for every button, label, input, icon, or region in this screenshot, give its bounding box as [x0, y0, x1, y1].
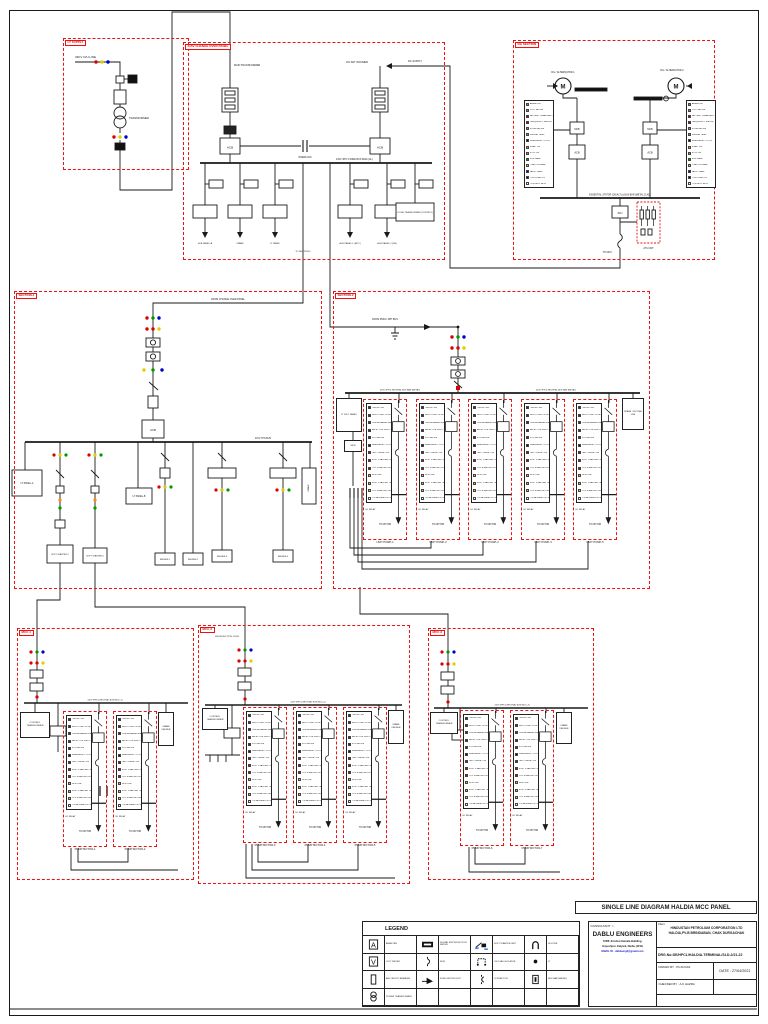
- starter-module-frame: ON/OFF SWMULTI FUNCTION METERDIGITAL AMM…: [521, 399, 565, 540]
- indicator-label: ON/OFF SW: [530, 407, 542, 409]
- indicator-row: EMERGENCY STOP: [117, 752, 141, 759]
- to-motor-label: TO MOTOR: [417, 524, 459, 526]
- indicator-lamp-icon: [526, 444, 529, 447]
- indicator-label: MULTI FUNCTION METER: [469, 725, 488, 727]
- indicator-row: MULTI FUNCTION METER: [514, 722, 538, 729]
- indicator-label: SELECTOR SWITCH: [469, 739, 488, 741]
- indicator-label: ON/OFF SW: [302, 714, 314, 716]
- indicator-row: DOL STARTER OFF: [297, 791, 321, 798]
- indicator-lamp-icon: [348, 757, 351, 760]
- indicator-lamp-icon: [473, 436, 476, 439]
- indicator-row: SELECTOR SWITCH: [525, 427, 549, 435]
- indicator-label: DOL STARTER ON: [122, 776, 141, 778]
- indicator-label: SOFT STARTER TRIP: [519, 789, 538, 791]
- indicator-row: MULTI FUNCTION METER: [577, 412, 601, 420]
- starter-module-pump-motor-2: ON/OFF SWMULTI FUNCTION METERDIGITAL AMM…: [113, 711, 157, 856]
- indicator-label: DOL STARTER ON: [477, 467, 496, 469]
- indicator-label: EMERGENCY STOP: [72, 754, 91, 756]
- panel-tag: DG SECTION: [515, 42, 539, 48]
- indicator-lamp-icon: [421, 406, 424, 409]
- indicator-row: TRIP / RESET PB: [347, 755, 371, 762]
- indicator-row: SOFT STARTER ON: [577, 457, 601, 465]
- indicator-row: TRIP / RESET PB: [247, 755, 271, 762]
- starter-module-unit-pump-4: ON/OFF SWMULTI FUNCTION METERDIGITAL AMM…: [521, 399, 565, 549]
- ammeter-icon: A: [363, 936, 385, 954]
- indicator-lamp-icon: [465, 739, 468, 742]
- indicator-row: SOFT STARTER ON: [247, 762, 271, 769]
- indicator-row: MULTI FUNCTION METER: [247, 719, 271, 726]
- panel-tag: MCC-3: [430, 630, 445, 636]
- indicator-label: FAULT LAMP: [692, 171, 705, 173]
- indicator-lamp-icon: [368, 429, 371, 432]
- indicator-lamp-icon: [298, 800, 301, 803]
- indicator-lamp-icon: [68, 732, 71, 735]
- indicator-lamp-icon: [368, 489, 371, 492]
- indicator-label: MCB TRIP: [469, 782, 479, 784]
- indicator-lamp-icon: [348, 736, 351, 739]
- to-motor-label: TO MOTOR: [244, 827, 286, 829]
- indicator-row: SOFT STARTER TRIP: [514, 787, 538, 794]
- indicator-lamp-icon: [473, 406, 476, 409]
- indicator-row: SELECTOR SWITCH: [514, 736, 538, 743]
- indicator-row: MULTI FUNCTION METER: [297, 719, 321, 726]
- indicator-label: MULTI FUNCTION METER: [352, 722, 371, 724]
- indicator-label: AMMETER: [530, 103, 541, 105]
- indicator-lamp-icon: [688, 182, 691, 185]
- indicator-label: CONTROL MCB: [692, 183, 708, 185]
- indicator-row: TRIP / RESET PB: [514, 758, 538, 765]
- indicator-lamp-icon: [298, 764, 301, 767]
- indicator-label: SOFT STARTER ON: [469, 768, 488, 770]
- indicator-label: DOL STARTER ON: [72, 776, 91, 778]
- transformer-icon: [363, 989, 385, 1007]
- indicator-lamp-icon: [298, 714, 301, 717]
- control-transformer-box: CONTROL TRANSFORMER: [430, 712, 458, 734]
- indicator-lamp-icon: [118, 768, 121, 771]
- indicator-label: DOL STARTER ON: [252, 772, 271, 774]
- indicator-row: DIGITAL AMMETER: [367, 419, 391, 427]
- starter-module-frame: ON/OFF SWMULTI FUNCTION METERDIGITAL AMM…: [510, 710, 554, 846]
- indicator-row: SOFT STARTER TRIP: [67, 788, 91, 795]
- indicator-lamp-icon: [526, 421, 529, 424]
- starter-module-label: PUMP MOTOR-6: [456, 847, 508, 855]
- indicator-label: TRIP / RESET PB: [469, 760, 487, 762]
- indicator-label: MULTI FUNCTION METER: [530, 414, 549, 416]
- indicator-label: EMERGENCY STOP: [530, 140, 551, 142]
- indicator-row: DOL STARTER ON: [420, 464, 444, 472]
- indicator-row: ON/OFF SW: [247, 712, 271, 719]
- to-motor-label: TO MOTOR: [64, 831, 106, 833]
- indicator-label: DOL STARTER ON: [302, 772, 321, 774]
- starter-module-frame: ON/OFF SWMULTI FUNCTION METERDIGITAL AMM…: [363, 399, 407, 540]
- consultant-address-1: 72/88 ,Krishna Kamala Building,: [591, 940, 655, 943]
- indicator-lamp-icon: [248, 778, 251, 781]
- overload-relay-label: O/L RELAY: [512, 815, 530, 817]
- indicator-row: RTD METER: [117, 745, 141, 752]
- indicator-lamp-icon: [688, 176, 691, 179]
- indicator-label: MCB TRIP: [72, 783, 82, 785]
- indicator-row: SOFT STARTER ON: [525, 457, 549, 465]
- empty-row: [657, 995, 756, 1006]
- indicator-label: HOUR METER: [692, 128, 707, 130]
- indicator-row: SOFT STARTER ON: [514, 765, 538, 772]
- starter-module-pump-motor-5: ON/OFF SWMULTI FUNCTION METERDIGITAL AMM…: [343, 707, 387, 852]
- spare-feeder-box: SPARE FEEDER: [556, 712, 572, 744]
- indicator-row: ON/OFF SW: [420, 404, 444, 412]
- to-motor-label: TO MOTOR: [114, 831, 156, 833]
- indicator-label: ON/OFF SW: [352, 714, 364, 716]
- indicator-lamp-icon: [248, 764, 251, 767]
- indicator-lamp-icon: [248, 728, 251, 731]
- indicator-row: LOCAL/REMOTE SW: [347, 798, 371, 805]
- starter-module-label: UNIT PUMP-1: [359, 541, 411, 549]
- indicator-label: MCB TRIP: [352, 779, 362, 781]
- indicator-label: RTD METER: [477, 437, 490, 439]
- indicator-label: DIGITAL AMMETER: [469, 732, 488, 734]
- indicator-label: DIGITAL AMMETER: [252, 729, 271, 731]
- indicator-label: LOW LUBE OIL: [692, 177, 707, 179]
- legend-label: AIR CIRCUIT BREAKER: [385, 971, 417, 989]
- indicator-label: DIGITAL AMMETER: [530, 422, 549, 424]
- indicator-row: LOCAL/REMOTE SW: [464, 801, 488, 808]
- indicator-row: DOL STARTER ON: [247, 769, 271, 776]
- legend-empty-cell: [493, 989, 525, 1007]
- indicator-row: RTD METER: [420, 434, 444, 442]
- to-motor-label: TO MOTOR: [294, 827, 336, 829]
- indicator-label: ON/OFF SW: [252, 714, 264, 716]
- indicator-label: ON/OFF SW: [519, 717, 531, 719]
- indicator-label: DIGITAL AMMETER: [477, 422, 496, 424]
- indicator-lamp-icon: [348, 778, 351, 781]
- lt-dist-panel-box: LT DIST. PANEL: [336, 398, 362, 432]
- legend-label: LT: [547, 954, 579, 972]
- indicator-label: MCB TRIP: [122, 783, 132, 785]
- indicator-lamp-icon: [688, 115, 691, 118]
- indicator-lamp-icon: [298, 771, 301, 774]
- indicator-label: DIGITAL AMMETER: [352, 729, 371, 731]
- indicator-row: ON/OFF SW: [514, 715, 538, 722]
- indicator-row: SELECTOR SWITCH: [577, 427, 601, 435]
- indicator-label: RUN LAMP: [530, 158, 541, 160]
- indicator-label: ON/OFF SW: [72, 718, 84, 720]
- indicator-row: DOL STARTER ON: [117, 773, 141, 780]
- indicator-lamp-icon: [473, 474, 476, 477]
- indicator-row: DIGITAL AMMETER: [464, 729, 488, 736]
- indicator-row: SELECTOR SWITCH: [67, 737, 91, 744]
- indicator-lamp-icon: [68, 768, 71, 771]
- indicator-lamp-icon: [688, 109, 691, 112]
- indicator-label: LOCAL/REMOTE SW: [477, 497, 496, 499]
- indicator-lamp-icon: [473, 489, 476, 492]
- indicator-lamp-icon: [526, 152, 529, 155]
- indicator-row: MCB TRIP: [247, 776, 271, 783]
- indicator-row: DIGITAL AMMETER: [525, 419, 549, 427]
- indicator-label: EMERGENCY STOP: [352, 750, 371, 752]
- indicator-label: SOFT STARTER ON: [530, 459, 549, 461]
- indicator-label: MCB TRIP: [425, 474, 435, 476]
- indicator-lamp-icon: [465, 753, 468, 756]
- indicator-lamp-icon: [578, 489, 581, 492]
- indicator-label: EMERGENCY STOP: [425, 444, 444, 446]
- indicator-lamp-icon: [473, 482, 476, 485]
- control-transformer-box: CONTROL TRANSFORMER: [202, 708, 228, 730]
- consultant-name: DABLU ENGINEERS: [591, 931, 655, 938]
- indicator-lamp-icon: [368, 459, 371, 462]
- legend-empty-cell: [525, 989, 547, 1007]
- voltmeter-icon: V: [363, 954, 385, 972]
- indicator-row: TRIP / RESET PB: [525, 449, 549, 457]
- client-cell: Client HINDUSTAN PETROLIUM CORPORATION L…: [657, 922, 756, 948]
- indicator-label: RTD METER: [252, 743, 265, 745]
- starter-module-frame: ON/OFF SWMULTI FUNCTION METERDIGITAL AMM…: [416, 399, 460, 540]
- indicator-label: RUN LAMP: [692, 158, 703, 160]
- indicator-row: TRIP / RESET PB: [464, 758, 488, 765]
- indicator-lamp-icon: [348, 764, 351, 767]
- indicator-lamp-icon: [68, 775, 71, 778]
- indicator-lamp-icon: [515, 767, 518, 770]
- indicator-label: LOCAL/REMOTE SW: [372, 497, 391, 499]
- indicator-label: SOFT STARTER ON: [425, 459, 444, 461]
- indicator-lamp-icon: [473, 467, 476, 470]
- indicator-lamp-icon: [68, 740, 71, 743]
- indicator-row: EMERGENCY STOP: [577, 442, 601, 450]
- indicator-lamp-icon: [515, 781, 518, 784]
- indicator-label: SELECTOR SWITCH: [530, 429, 549, 431]
- indicator-label: STOP PB: [692, 152, 701, 154]
- panel-change-over: 415V CHANGE OVER PANEL: [183, 42, 445, 260]
- indicator-lamp-icon: [421, 421, 424, 424]
- indicator-lamp-icon: [473, 421, 476, 424]
- indicator-lamp-icon: [248, 714, 251, 717]
- indicator-row: MULTI FUNCTION METER: [420, 412, 444, 420]
- indicator-row: MULTI FUNCTION METER: [347, 719, 371, 726]
- indicator-row: TRIP / RESET PB: [67, 759, 91, 766]
- panel-tag: 415V CHANGE OVER PANEL: [185, 44, 231, 50]
- indicator-row: TRIP / RESET PB: [577, 449, 601, 457]
- indicator-row: LOCAL/REMOTE SW: [525, 494, 549, 502]
- indicator-label: BATTERY CHARGER ON: [530, 115, 553, 117]
- indicator-row: DIGITAL AMMETER: [420, 419, 444, 427]
- indicator-row: DOL STARTER ON: [577, 464, 601, 472]
- indicator-label: ENGINE TEMP: [530, 134, 545, 136]
- indicator-label: SOFT STARTER TRIP: [252, 786, 271, 788]
- indicator-row: EMERGENCY STOP: [247, 748, 271, 755]
- soft-starter-icon: [471, 936, 493, 954]
- indicator-lamp-icon: [526, 103, 529, 106]
- indicator-label: EMERGENCY STOP: [582, 444, 601, 446]
- indicator-lamp-icon: [248, 743, 251, 746]
- indicator-label: EMERGENCY STOP: [372, 444, 391, 446]
- indicator-row: SELECTOR SWITCH: [117, 737, 141, 744]
- indicator-lamp-icon: [515, 803, 518, 806]
- indicator-row: DOL STARTER ON: [347, 769, 371, 776]
- indicator-lamp-icon: [68, 747, 71, 750]
- indicator-label: SOFT STARTER TRIP: [72, 790, 91, 792]
- indicator-label: SOFT STARTER TRIP: [122, 790, 141, 792]
- indicator-lamp-icon: [118, 725, 121, 728]
- drawing-title: SINGLE LINE DIAGRAM HALDIA MCC PANEL: [575, 901, 757, 914]
- indicator-row: SELECTOR SWITCH: [464, 736, 488, 743]
- svg-text:A: A: [371, 940, 376, 949]
- indicator-label: LOCAL/REMOTE SW: [530, 497, 549, 499]
- indicator-row: DOL STARTER ON: [67, 773, 91, 780]
- indicator-lamp-icon: [298, 743, 301, 746]
- indicator-label: FREQUENCY METER: [530, 121, 552, 123]
- indicator-lamp-icon: [298, 721, 301, 724]
- indicator-row: LOCAL/REMOTE SW: [472, 494, 496, 502]
- indicator-row: SOFT STARTER TRIP: [577, 479, 601, 487]
- to-motor-label: TO MOTOR: [344, 827, 386, 829]
- starter-indicator-panel: ON/OFF SWMULTI FUNCTION METERDIGITAL AMM…: [346, 711, 372, 806]
- isolator-icon: [471, 954, 493, 972]
- indicator-label: RTD METER: [469, 746, 482, 748]
- indicator-lamp-icon: [368, 406, 371, 409]
- indicator-row: SOFT STARTER ON: [367, 457, 391, 465]
- indicator-lamp-icon: [688, 152, 691, 155]
- starter-module-unit-pump-1: ON/OFF SWMULTI FUNCTION METERDIGITAL AMM…: [363, 399, 407, 549]
- indicator-lamp-icon: [515, 717, 518, 720]
- indicator-row: SOFT STARTER TRIP: [297, 784, 321, 791]
- overload-relay-label: O/L RELAY: [523, 509, 541, 511]
- indicator-lamp-icon: [248, 750, 251, 753]
- indicator-row: MCB TRIP: [525, 472, 549, 480]
- starter-module-unit-pump-2: ON/OFF SWMULTI FUNCTION METERDIGITAL AMM…: [416, 399, 460, 549]
- indicator-lamp-icon: [368, 444, 371, 447]
- indicator-label: SOFT STARTER TRIP: [530, 482, 549, 484]
- starter-module-label: UNIT PUMP-3: [464, 541, 516, 549]
- starter-indicator-panel: ON/OFF SWMULTI FUNCTION METERDIGITAL AMM…: [116, 715, 142, 810]
- indicator-label: SELECTOR SWITCH: [519, 739, 538, 741]
- indicator-lamp-icon: [578, 436, 581, 439]
- indicator-lamp-icon: [515, 746, 518, 749]
- indicator-row: EMERGENCY STOP: [367, 442, 391, 450]
- indicator-lamp-icon: [368, 474, 371, 477]
- mcb-box: MCB: [344, 440, 362, 452]
- indicator-lamp-icon: [298, 793, 301, 796]
- indicator-label: LOCAL/REMOTE SW: [252, 800, 271, 802]
- indicator-label: SOFT STARTER TRIP: [425, 482, 444, 484]
- legend-label: BUS BAR (METAL): [547, 971, 579, 989]
- panel-lt-supply: LT SUPPLY: [63, 38, 189, 170]
- indicator-row: SOFT STARTER TRIP: [347, 784, 371, 791]
- indicator-row: TRIP / RESET PB: [472, 449, 496, 457]
- indicator-row: SOFT STARTER TRIP: [247, 784, 271, 791]
- indicator-lamp-icon: [526, 170, 529, 173]
- indicator-label: EMERGENCY STOP: [122, 754, 141, 756]
- indicator-label: SELECTOR SWITCH: [425, 429, 444, 431]
- indicator-label: MCB TRIP: [519, 782, 529, 784]
- indicator-row: RTD METER: [67, 745, 91, 752]
- indicator-label: LOCAL/REMOTE SW: [582, 497, 601, 499]
- indicator-lamp-icon: [248, 771, 251, 774]
- indicator-lamp-icon: [526, 146, 529, 149]
- starter-indicator-panel: ON/OFF SWMULTI FUNCTION METERDIGITAL AMM…: [576, 403, 602, 503]
- indicator-row: DIGITAL AMMETER: [577, 419, 601, 427]
- drawing-number: DRG.No:DE/HPCL/HALDIA-TERMINAL/SLD-2/21-…: [657, 948, 756, 963]
- indicator-label: EMERGENCY STOP: [530, 444, 549, 446]
- to-motor-label: TO MOTOR: [522, 524, 564, 526]
- legend-label: DIGITAL MULTIFUNCTION METER: [439, 936, 471, 954]
- indicator-lamp-icon: [421, 436, 424, 439]
- digital-meter-icon: [417, 936, 439, 954]
- drawing-date: DATE : 27/04/2021: [714, 963, 756, 979]
- indicator-label: LOCAL/REMOTE SW: [352, 800, 371, 802]
- indicator-lamp-icon: [526, 139, 529, 142]
- starter-indicator-panel: ON/OFF SWMULTI FUNCTION METERDIGITAL AMM…: [419, 403, 445, 503]
- indicator-row: SOFT STARTER TRIP: [472, 479, 496, 487]
- indicator-row: LOCAL/REMOTE SW: [577, 494, 601, 502]
- indicator-label: EMERGENCY STOP: [252, 750, 271, 752]
- indicator-lamp-icon: [68, 782, 71, 785]
- indicator-lamp-icon: [578, 421, 581, 424]
- indicator-label: SELECTOR SWITCH: [252, 736, 271, 738]
- indicator-label: LOAD ON LAMP: [692, 164, 708, 166]
- indicator-row: LOCAL/REMOTE SW: [247, 798, 271, 805]
- indicator-row: DOL STARTER ON: [297, 769, 321, 776]
- indicator-lamp-icon: [118, 782, 121, 785]
- indicator-row: EMERGENCY STOP: [464, 751, 488, 758]
- indicator-row: MCB TRIP: [464, 779, 488, 786]
- indicator-row: MULTI FUNCTION METER: [67, 723, 91, 730]
- consultant-address-2: Gayeshpur, Kalyani, Nadia, (W.B): [591, 945, 655, 948]
- indicator-row: LOCAL/REMOTE SW: [420, 494, 444, 502]
- indicator-label: TRIP / RESET PB: [352, 757, 370, 759]
- legend-empty-cell: [417, 989, 439, 1007]
- indicator-row: SOFT STARTER ON: [472, 457, 496, 465]
- indicator-label: DIGITAL AMMETER: [302, 729, 321, 731]
- indicator-lamp-icon: [118, 804, 121, 807]
- indicator-row: DOL STARTER OFF: [464, 794, 488, 801]
- indicator-lamp-icon: [526, 459, 529, 462]
- indicator-lamp-icon: [526, 182, 529, 185]
- panel-tag: LT SUPPLY: [65, 40, 86, 46]
- indicator-row: MCB TRIP: [472, 472, 496, 480]
- indicator-lamp-icon: [578, 429, 581, 432]
- indicator-row: LOCAL/REMOTE SW: [367, 494, 391, 502]
- indicator-lamp-icon: [526, 176, 529, 179]
- indicator-lamp-icon: [348, 800, 351, 803]
- indicator-row: DOL STARTER ON: [514, 772, 538, 779]
- starter-indicator-panel: ON/OFF SWMULTI FUNCTION METERDIGITAL AMM…: [366, 403, 392, 503]
- indicator-label: EMERGENCY STOP: [692, 140, 713, 142]
- indicator-row: DOL STARTER ON: [525, 464, 549, 472]
- indicator-label: DOL STARTER ON: [372, 467, 391, 469]
- indicator-lamp-icon: [688, 164, 691, 167]
- consultant-email: EMAIL ID - dablueng3@gmail.com: [591, 950, 655, 953]
- indicator-label: RTD METER: [72, 747, 85, 749]
- indicator-lamp-icon: [515, 774, 518, 777]
- indicator-lamp-icon: [688, 103, 691, 106]
- indicator-lamp-icon: [421, 459, 424, 462]
- to-motor-label: TO MOTOR: [469, 524, 511, 526]
- legend-empty-cell: [439, 989, 471, 1007]
- indicator-label: HOUR METER: [530, 128, 545, 130]
- overload-relay-label: O/L RELAY: [65, 816, 83, 818]
- indicator-row: DOL STARTER ON: [367, 464, 391, 472]
- indicator-label: MCB TRIP: [530, 474, 540, 476]
- indicator-lamp-icon: [368, 467, 371, 470]
- indicator-lamp-icon: [118, 718, 121, 721]
- indicator-lamp-icon: [515, 724, 518, 727]
- indicator-label: MULTI FUNCTION METER: [477, 414, 496, 416]
- indicator-row: DOL STARTER OFF: [577, 487, 601, 495]
- indicator-lamp-icon: [68, 761, 71, 764]
- indicator-lamp-icon: [118, 732, 121, 735]
- indicator-lamp-icon: [526, 482, 529, 485]
- legend-label: FUSE SWITCH UNIT: [439, 971, 471, 989]
- indicator-lamp-icon: [578, 406, 581, 409]
- starter-module-unit-pump-3: ON/OFF SWMULTI FUNCTION METERDIGITAL AMM…: [468, 399, 512, 549]
